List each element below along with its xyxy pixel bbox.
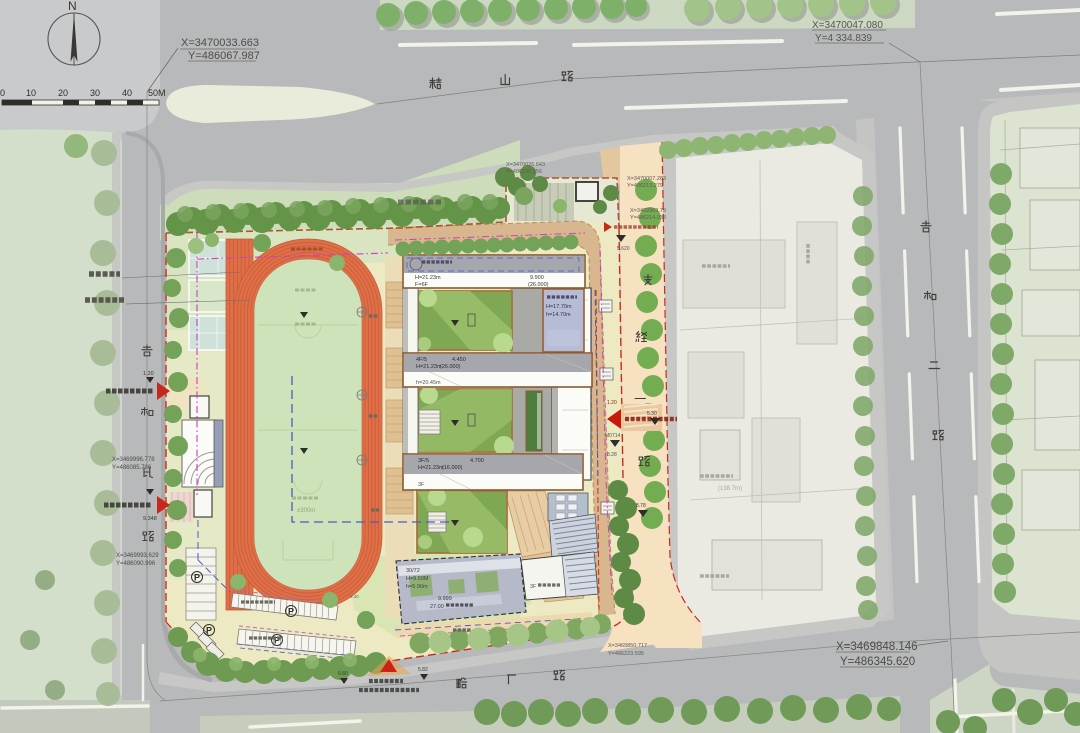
svg-text:6.40: 6.40 (350, 594, 359, 599)
svg-text:4.450: 4.450 (452, 357, 466, 363)
svg-text:P: P (206, 626, 212, 636)
svg-text:X=3470007.283: X=3470007.283 (627, 176, 666, 182)
svg-text:Y=4 334.839: Y=4 334.839 (815, 33, 872, 44)
svg-text:X=3469969.79: X=3469969.79 (630, 208, 666, 214)
svg-text:(138.7m): (138.7m) (718, 486, 742, 492)
svg-text:h=5.90m: h=5.90m (406, 584, 428, 590)
svg-text:0: 0 (0, 88, 5, 98)
svg-text:H=17.70m: H=17.70m (546, 304, 572, 310)
svg-text:20: 20 (58, 88, 68, 98)
svg-text:h=14.70m: h=14.70m (546, 312, 571, 318)
svg-text:X=3469993.629: X=3469993.629 (116, 553, 159, 559)
svg-text:(26.000): (26.000) (528, 282, 549, 288)
svg-text:Y=486214.038: Y=486214.038 (630, 215, 666, 221)
svg-text:(26.000): (26.000) (440, 364, 461, 370)
svg-text:H=21.23m: H=21.23m (418, 465, 444, 471)
svg-text:P: P (288, 607, 294, 617)
svg-text:Y=486223.595: Y=486223.595 (608, 651, 644, 657)
svg-text:H=21.23m: H=21.23m (416, 364, 442, 370)
svg-text:X=3470047.080: X=3470047.080 (812, 20, 883, 31)
svg-text:Y=486085.786: Y=486085.786 (112, 465, 152, 471)
svg-text:3F: 3F (418, 482, 425, 488)
svg-text:P: P (194, 573, 200, 583)
svg-text:50M: 50M (148, 88, 166, 98)
svg-text:X=3469996.778: X=3469996.778 (112, 457, 155, 463)
svg-text:5.82: 5.82 (418, 667, 428, 673)
svg-text:5.620: 5.620 (617, 246, 630, 252)
svg-text:h=20.45m: h=20.45m (416, 380, 441, 386)
svg-text:H=21.23m: H=21.23m (415, 275, 441, 281)
svg-text:8.28: 8.28 (607, 452, 617, 458)
svg-text:N: N (68, 0, 77, 13)
svg-text:F=6F: F=6F (415, 282, 429, 288)
svg-text:(16.000): (16.000) (442, 465, 463, 471)
svg-text:4F/5: 4F/5 (416, 357, 427, 363)
svg-text:30/72: 30/72 (406, 568, 420, 574)
svg-text:8.78: 8.78 (636, 503, 646, 509)
svg-text:Y=486213.279: Y=486213.279 (627, 183, 663, 189)
svg-text:9.348: 9.348 (143, 516, 157, 522)
svg-text:X=3470033.663: X=3470033.663 (181, 37, 259, 49)
svg-text:X=3469850.717: X=3469850.717 (608, 643, 647, 649)
svg-text:6.80: 6.80 (338, 671, 348, 677)
svg-text:Y=486345.620: Y=486345.620 (840, 656, 915, 668)
svg-text:3F: 3F (530, 584, 537, 590)
svg-text:5.30: 5.30 (647, 411, 657, 417)
svg-text:Y=486090.996: Y=486090.996 (116, 561, 156, 567)
svg-text:±300m: ±300m (297, 508, 315, 514)
svg-text:X=3469848.146: X=3469848.146 (836, 641, 918, 653)
svg-text:H=9.50M: H=9.50M (406, 576, 429, 582)
svg-text:10: 10 (26, 88, 36, 98)
svg-text:27.00: 27.00 (430, 604, 444, 610)
svg-text:9.999: 9.999 (438, 596, 452, 602)
svg-text:Y=486067.987: Y=486067.987 (188, 50, 260, 62)
svg-text:X=3470026.643: X=3470026.643 (506, 162, 545, 168)
svg-text:30: 30 (90, 88, 100, 98)
svg-text:3F/5: 3F/5 (418, 458, 429, 464)
svg-text:Y=486150.956: Y=486150.956 (506, 169, 542, 175)
svg-text:9.900: 9.900 (530, 275, 544, 281)
svg-text:1.20: 1.20 (143, 371, 154, 377)
svg-text:1.20: 1.20 (607, 400, 617, 406)
svg-text:40: 40 (122, 88, 132, 98)
svg-text:M0714: M0714 (605, 433, 621, 439)
svg-text:4.700: 4.700 (470, 458, 484, 464)
